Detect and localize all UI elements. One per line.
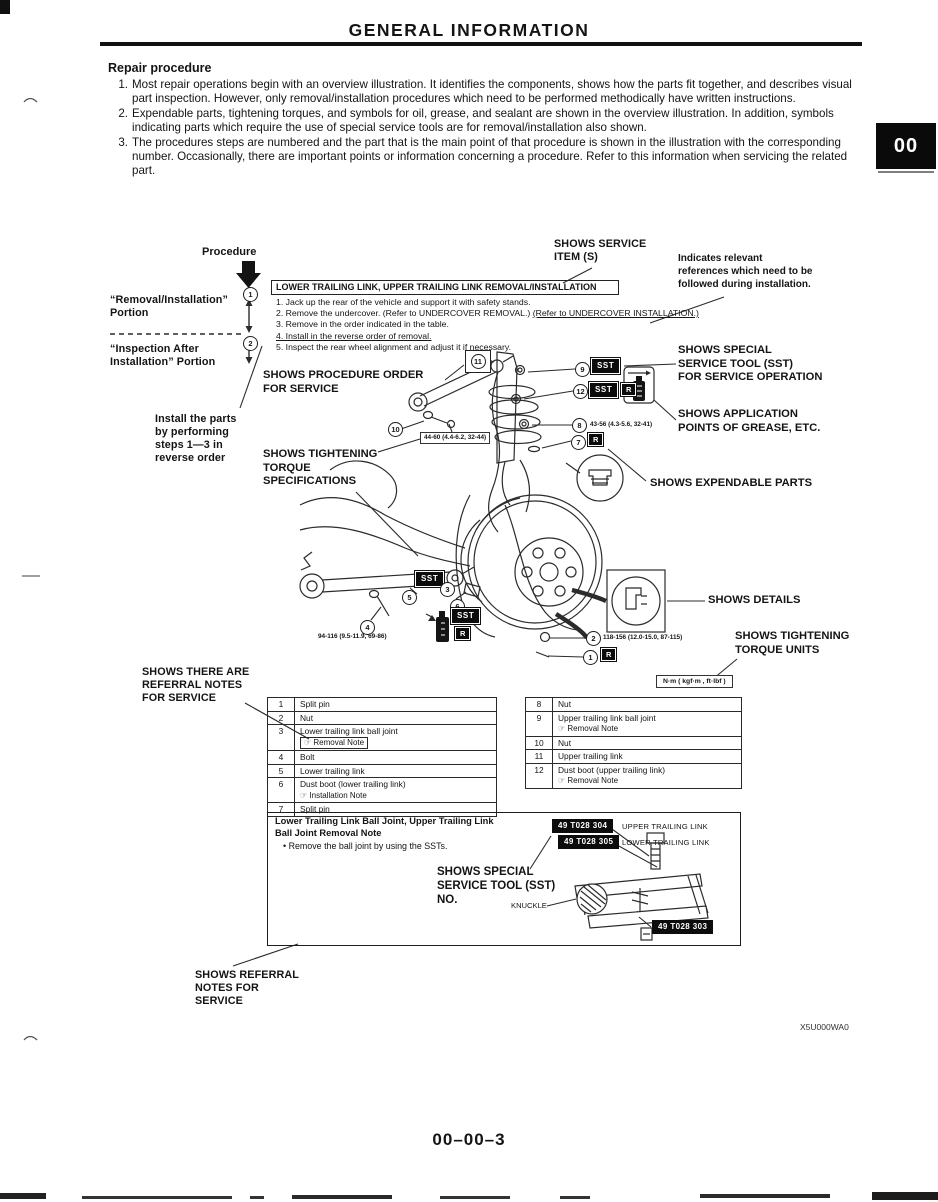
procedure-title-box: LOWER TRAILING LINK, UPPER TRAILING LINK…	[271, 280, 619, 295]
shows-application-label: SHOWS APPLICATION POINTS OF GREASE, ETC.	[678, 408, 820, 435]
referral-note: ☞ Removal Note	[558, 776, 618, 787]
referral-note: ☞ Removal Note	[558, 724, 618, 735]
callout-7: 7	[571, 435, 586, 450]
note-box-title: Lower Trailing Link Ball Joint, Upper Tr…	[275, 816, 494, 839]
shows-tightening-spec-label: SHOWS TIGHTENING TORQUE SPECIFICATIONS	[263, 448, 377, 489]
callout-11-box: 11	[465, 350, 491, 373]
item-number: 2.	[108, 107, 132, 136]
shows-sst-no-label: SHOWS SPECIAL SERVICE TOOL (SST) NO.	[437, 865, 555, 907]
figure-code: X5U000WA0	[800, 1022, 849, 1032]
torque-text-2: 118-156 (12.0-15.0, 87-115)	[603, 634, 682, 642]
torque-text-4: 94-116 (9.5-11.9, 69-86)	[318, 633, 387, 641]
shows-torque-units-label: SHOWS TIGHTENING TORQUE UNITS	[735, 630, 849, 657]
r-chip-12: R	[622, 384, 635, 395]
step-line: 2. Remove the undercover. (Refer to UNDE…	[276, 308, 746, 319]
step-line: 5. Inspect the rear wheel alignment and …	[276, 342, 746, 353]
table-row: 5Lower trailing link	[268, 764, 496, 778]
item-number: 3.	[108, 136, 132, 179]
table-row: 9Upper trailing link ball joint☞ Removal…	[526, 711, 741, 736]
portion-marker-1: 1	[243, 287, 258, 302]
sst-number-303: 49 T028 303	[652, 920, 713, 934]
callout-1: 1	[583, 650, 598, 665]
shows-referral-table-label: SHOWS THERE ARE REFERRAL NOTES FOR SERVI…	[142, 666, 249, 705]
torque-box-upper-bolt: 44-60 (4.4-6.2, 32-44)	[420, 432, 490, 444]
shows-sst-label: SHOWS SPECIAL SERVICE TOOL (SST) FOR SER…	[678, 344, 822, 385]
table-row: 12Dust boot (upper trailing link)☞ Remov…	[526, 763, 741, 788]
sst-chip-3: SST	[416, 572, 443, 586]
referral-note: ☞ Removal Note	[300, 737, 368, 750]
table-row: 1Split pin	[268, 698, 496, 711]
sst-number-305: 49 T028 305	[558, 835, 619, 849]
callout-9: 9	[575, 362, 590, 377]
item-text: Most repair operations begin with an ove…	[132, 78, 870, 107]
table-row: 2Nut	[268, 711, 496, 725]
callout-12: 12	[573, 384, 588, 399]
table-row: 11Upper trailing link	[526, 749, 741, 763]
r-chip-1: R	[602, 649, 615, 660]
callout-10: 10	[388, 422, 403, 437]
table-row: 10Nut	[526, 736, 741, 750]
r-chip-lower: R	[456, 628, 469, 639]
shows-expendable-label: SHOWS EXPENDABLE PARTS	[650, 477, 812, 491]
list-item: 3. The procedures steps are numbered and…	[108, 136, 870, 179]
shows-service-item-label: SHOWS SERVICE ITEM (S)	[554, 238, 646, 264]
indicates-relevant-label: Indicates relevant references which need…	[678, 252, 813, 291]
repair-procedure-heading: Repair procedure	[108, 61, 212, 75]
callout-3: 3	[440, 582, 455, 597]
removal-portion-label: “Removal/Installation” Portion	[110, 294, 228, 320]
sealant-bottle-icon	[426, 611, 449, 642]
details-box	[607, 570, 665, 632]
callout-8: 8	[572, 418, 587, 433]
portion-marker-2: 2	[243, 336, 258, 351]
table-row: 8Nut	[526, 698, 741, 711]
shows-referral-note-label: SHOWS REFERRAL NOTES FOR SERVICE	[195, 969, 299, 1008]
callout-5: 5	[402, 590, 417, 605]
inspection-portion-label: “Inspection After Installation” Portion	[110, 343, 215, 369]
item-number: 1.	[108, 78, 132, 107]
shows-procedure-order-label: SHOWS PROCEDURE ORDER FOR SERVICE	[263, 369, 423, 396]
table-row: 6Dust boot (lower trailing link)☞ Instal…	[268, 777, 496, 802]
callout-2: 2	[586, 631, 601, 646]
parts-table-right: 8Nut 9Upper trailing link ball joint☞ Re…	[525, 697, 742, 789]
install-parts-label: Install the parts by performing steps 1—…	[155, 413, 237, 465]
item-text: Expendable parts, tightening torques, an…	[132, 107, 870, 136]
step-line: 3. Remove in the order indicated in the …	[276, 319, 746, 330]
parts-table-left: 1Split pin 2Nut 3Lower trailing link bal…	[267, 697, 497, 817]
torque-text-8: 43-56 (4.3-5.6, 32-41)	[590, 421, 652, 429]
manual-page: GENERAL INFORMATION 00 Repair procedure …	[0, 0, 938, 1202]
page-number: 00–00–3	[0, 1130, 938, 1150]
step-line: 4. Install in the reverse order of remov…	[276, 331, 746, 342]
sst-chip-9: SST	[592, 359, 619, 373]
table-row: 4Bolt	[268, 750, 496, 764]
repair-procedure-list: 1. Most repair operations begin with an …	[108, 78, 870, 179]
list-item: 1. Most repair operations begin with an …	[108, 78, 870, 107]
shows-details-label: SHOWS DETAILS	[708, 594, 800, 608]
referral-note: ☞ Installation Note	[300, 791, 367, 802]
sst-chip-12: SST	[590, 383, 617, 397]
procedure-down-arrow-icon	[236, 261, 261, 288]
list-item: 2. Expendable parts, tightening torques,…	[108, 107, 870, 136]
item-text: The procedures steps are numbered and th…	[132, 136, 870, 179]
procedure-label: Procedure	[202, 246, 256, 258]
note-box-bullet: • Remove the ball joint by using the SST…	[283, 841, 447, 852]
step-line: 1. Jack up the rear of the vehicle and s…	[276, 297, 746, 308]
r-chip-7: R	[589, 434, 602, 445]
sst-chip-lower: SST	[452, 609, 479, 623]
page-title: GENERAL INFORMATION	[0, 20, 938, 40]
sst-number-304: 49 T028 304	[552, 819, 613, 833]
torque-units-box: N·m ( kgf·m , ft·lbf )	[656, 675, 733, 688]
table-row: 3Lower trailing link ball joint☞ Removal…	[268, 724, 496, 750]
header-rule	[100, 42, 862, 46]
section-tab: 00	[876, 123, 936, 169]
expendable-detail-circle	[577, 455, 623, 501]
procedure-steps: 1. Jack up the rear of the vehicle and s…	[276, 297, 746, 353]
callout-11: 11	[471, 354, 486, 369]
